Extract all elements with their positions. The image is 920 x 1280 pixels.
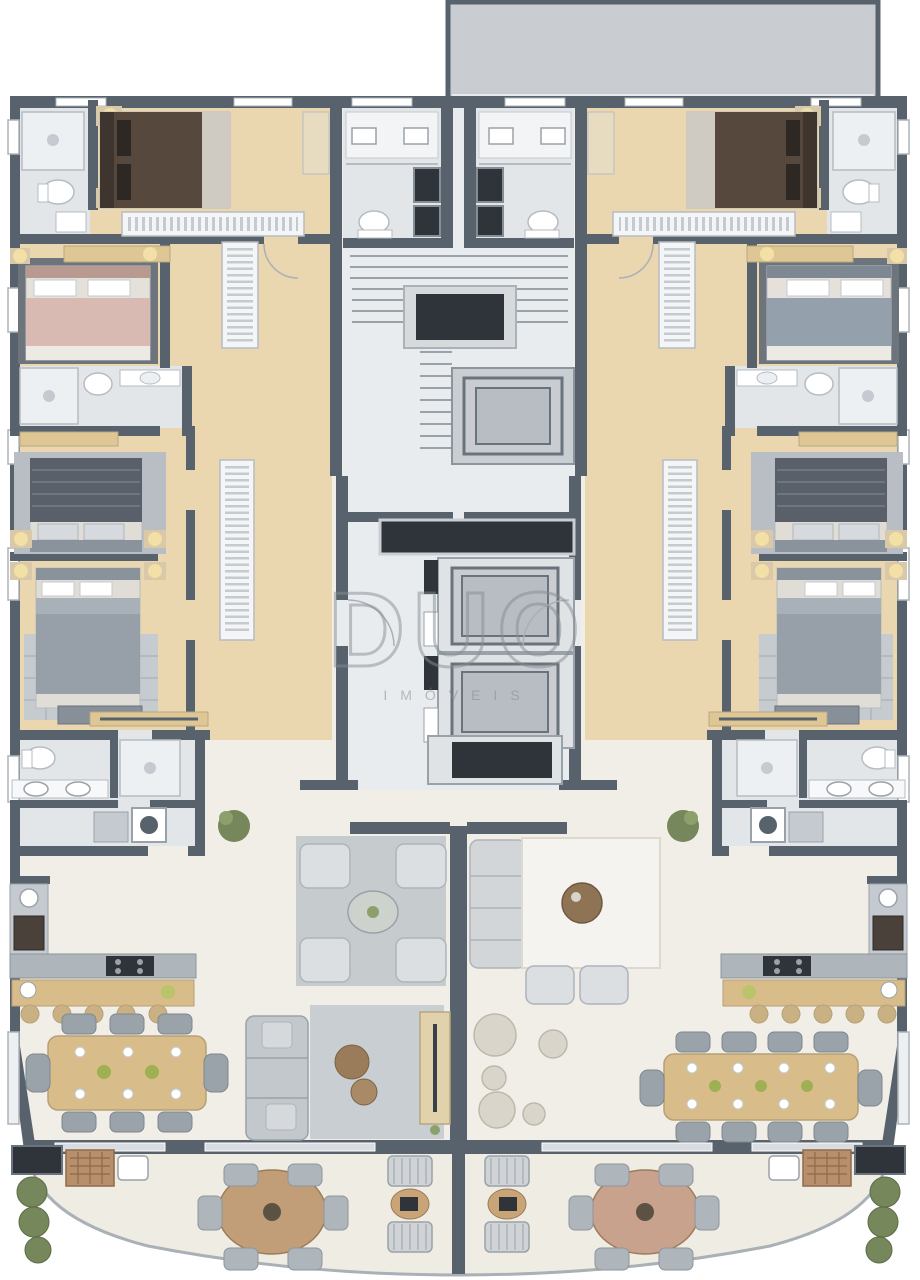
pillow [88, 280, 130, 296]
pouf [539, 1030, 567, 1058]
duvet-fold [36, 598, 140, 614]
shower-head-mirrored [761, 762, 773, 774]
interior-wall-mirrored [799, 800, 907, 808]
armchair [396, 938, 446, 982]
chair [204, 1054, 228, 1092]
duvet-fold-mirrored [687, 112, 715, 208]
interior-wall-mirrored [464, 108, 476, 248]
sink-basin-mirrored [489, 128, 513, 144]
pillow-mirrored [787, 280, 829, 296]
chair [814, 1122, 848, 1142]
planter-mirrored [870, 1177, 900, 1207]
interior-wall-mirrored [707, 730, 907, 740]
bowl [20, 982, 36, 998]
window-mirrored [898, 288, 909, 332]
sink-basin [404, 128, 428, 144]
coffee-table [562, 883, 602, 923]
plant [430, 1125, 440, 1135]
window-mirrored [898, 1032, 909, 1124]
chair-mirrored [659, 1248, 693, 1270]
duvet [26, 298, 150, 346]
armchair [396, 844, 446, 888]
interior-wall-mirrored [867, 876, 907, 884]
plate [123, 1089, 133, 1099]
bowl-mirrored [881, 982, 897, 998]
duvet-fold [26, 346, 150, 360]
chair-mirrored [695, 1196, 719, 1230]
interior-wall-mirrored [725, 366, 735, 436]
core-wall-mirrored [575, 104, 587, 476]
pouf [482, 1066, 506, 1090]
washer-mirrored [477, 168, 503, 202]
sink-basin-mirrored [757, 372, 777, 384]
balcony-divider-wall [452, 1148, 465, 1274]
chair [158, 1112, 192, 1132]
sink-basin-mirrored [541, 128, 565, 144]
chair [26, 1054, 50, 1092]
core-wall [330, 104, 342, 476]
chair [158, 1014, 192, 1034]
toilet-mirrored [805, 373, 833, 395]
dryer-mirrored [477, 206, 503, 236]
shower-head [47, 134, 59, 146]
lamp-mirrored [755, 564, 769, 578]
headboard-mirrored [775, 540, 887, 552]
floor-plan: DUOIMÓVEIS [0, 0, 920, 1280]
duvet-mirrored [767, 298, 891, 346]
pillow [84, 524, 124, 540]
interior-wall-mirrored [466, 238, 574, 248]
chair-mirrored [595, 1248, 629, 1270]
window-mirrored [811, 98, 861, 106]
chair [814, 1032, 848, 1052]
toilet-tank [358, 230, 392, 238]
plate [779, 1099, 789, 1109]
window [56, 98, 106, 106]
floor-plan-page: DUOIMÓVEIS [0, 0, 920, 1280]
door-opening [186, 600, 195, 640]
washer [414, 168, 440, 202]
kitchen-island [10, 954, 196, 978]
armchair [300, 844, 350, 888]
pillow-mirrored [793, 524, 833, 540]
chair [110, 1112, 144, 1132]
lamp [143, 247, 157, 261]
chair-mirrored [569, 1196, 593, 1230]
interior-wall [160, 244, 170, 368]
pillow-mirrored [839, 524, 879, 540]
chair [722, 1122, 756, 1142]
pillow-mirrored [841, 280, 883, 296]
burner-mirrored [774, 959, 780, 965]
bowl-mirrored [742, 985, 756, 999]
shower-head-mirrored [862, 390, 874, 402]
door-opening-mirrored [722, 470, 731, 510]
toilet-tank-mirrored [885, 750, 895, 768]
lamp [13, 249, 27, 263]
plant [219, 811, 233, 825]
interior-wall [182, 366, 192, 436]
interior-wall [336, 726, 348, 786]
pillow [80, 582, 112, 596]
chair-mirrored [659, 1164, 693, 1186]
duvet [30, 458, 142, 522]
side-table [335, 1045, 369, 1079]
grill-cabinet [12, 1146, 62, 1174]
bowl [755, 1080, 767, 1092]
interior-wall-mirrored [721, 800, 767, 808]
burner [115, 968, 121, 974]
sink-basin [140, 372, 160, 384]
washer-door-mirrored [759, 816, 777, 834]
interior-wall [195, 730, 205, 856]
interior-wall [10, 800, 118, 808]
planter [25, 1237, 51, 1263]
plate [779, 1063, 789, 1073]
sink-basin-mirrored [869, 782, 893, 796]
planter-mirrored [868, 1207, 898, 1237]
sink-basin [352, 128, 376, 144]
door-opening [118, 730, 152, 740]
chair [62, 1112, 96, 1132]
planter [17, 1177, 47, 1207]
pillow [34, 280, 76, 296]
lamp-mirrored [755, 532, 769, 546]
cabinet-mirrored [588, 112, 614, 174]
duvet-mirrored [775, 458, 887, 522]
plate [733, 1063, 743, 1073]
plate [123, 1047, 133, 1057]
window [8, 1032, 19, 1124]
duvet-fold-mirrored [767, 346, 891, 360]
watermark-subtitle: IMÓVEIS [383, 687, 532, 703]
plate [687, 1063, 697, 1073]
chair [676, 1122, 710, 1142]
bbq-sink-mirrored [769, 1156, 799, 1180]
pillow [38, 524, 78, 540]
lamp-mirrored [760, 247, 774, 261]
armchair [580, 966, 628, 1004]
window-mirrored [625, 98, 683, 106]
stove-mirrored [873, 916, 903, 950]
bbq-sink [118, 1156, 148, 1180]
interior-wall-mirrored [712, 730, 722, 856]
toilet-tank [22, 750, 32, 768]
plant [367, 906, 379, 918]
cooktop [106, 956, 154, 976]
tray [400, 1197, 418, 1211]
pillow [117, 120, 131, 156]
shower-head [144, 762, 156, 774]
burner [137, 959, 143, 965]
chair [62, 1014, 96, 1034]
centerpiece-mirrored [636, 1203, 654, 1221]
interior-wall-mirrored [559, 780, 617, 790]
pillow [42, 582, 74, 596]
unit-divider-wall [450, 826, 467, 1148]
shaft-slab [380, 520, 574, 554]
side-table [351, 1079, 377, 1105]
chair [324, 1196, 348, 1230]
interior-wall [10, 876, 50, 884]
pouf [523, 1103, 545, 1125]
planter-mirrored [866, 1237, 892, 1263]
stool-mirrored [878, 1005, 896, 1023]
lamp-mirrored [890, 249, 904, 263]
counter-mirrored [789, 812, 823, 842]
desk [20, 432, 118, 446]
grill-cabinet-mirrored [855, 1146, 905, 1174]
stove [14, 916, 44, 950]
planter [19, 1207, 49, 1237]
stool-mirrored [846, 1005, 864, 1023]
sink-basin [66, 782, 90, 796]
terrace-slab [448, 2, 878, 106]
centerpiece [263, 1203, 281, 1221]
elevator-cab [476, 388, 550, 444]
plate [733, 1099, 743, 1109]
interior-wall [343, 238, 451, 248]
window [352, 98, 412, 106]
interior-wall-mirrored [799, 740, 807, 798]
stool-mirrored [782, 1005, 800, 1023]
stool-mirrored [750, 1005, 768, 1023]
toilet-tank [38, 184, 48, 202]
interior-wall [300, 780, 358, 790]
shower-head [43, 390, 55, 402]
burner-mirrored [774, 968, 780, 974]
burner [115, 959, 121, 965]
plate [171, 1047, 181, 1057]
door-opening-mirrored [722, 600, 731, 640]
bowl [161, 985, 175, 999]
chair-mirrored [595, 1164, 629, 1186]
pouf [474, 1014, 516, 1056]
window [8, 288, 19, 332]
duvet-fold-mirrored [777, 598, 881, 614]
washer-door [140, 816, 158, 834]
chair [768, 1122, 802, 1142]
dryer [414, 206, 440, 236]
chair [676, 1032, 710, 1052]
plate [825, 1063, 835, 1073]
pillow-mirrored [786, 164, 800, 200]
pillow [266, 1104, 296, 1130]
vanity [56, 212, 86, 232]
lamp [14, 532, 28, 546]
glass-door [205, 1143, 375, 1151]
chair [224, 1248, 258, 1270]
lamp [148, 532, 162, 546]
toilet-tank-mirrored [525, 230, 559, 238]
plate [75, 1089, 85, 1099]
lamp [14, 564, 28, 578]
kitchen-island-mirrored [721, 954, 907, 978]
kitchen-sink [20, 889, 38, 907]
door-opening [186, 470, 195, 510]
counter [94, 812, 128, 842]
plate [687, 1099, 697, 1109]
glass-door-mirrored [542, 1143, 712, 1151]
bowl [801, 1080, 813, 1092]
stair-landing [416, 294, 504, 340]
burner [137, 968, 143, 974]
toilet [84, 373, 112, 395]
lamp-mirrored [889, 532, 903, 546]
toilet-tank-mirrored [869, 184, 879, 202]
headboard-mirrored [803, 112, 817, 208]
shaft-slab [452, 742, 552, 778]
plate [75, 1047, 85, 1057]
headboard-mirrored [767, 266, 891, 278]
pillow-mirrored [843, 582, 875, 596]
headboard [26, 266, 150, 278]
watermark-logo: DUO [328, 571, 588, 689]
headboard [100, 112, 114, 208]
chair [110, 1014, 144, 1034]
interior-wall [150, 800, 196, 808]
sectional-sofa [470, 840, 526, 968]
armchair [526, 966, 574, 1004]
plate [825, 1099, 835, 1109]
headboard [30, 540, 142, 552]
pouf [479, 1092, 515, 1128]
desk-mirrored [799, 432, 897, 446]
lamp-mirrored [889, 564, 903, 578]
tray-mirrored [499, 1197, 517, 1211]
window-mirrored [505, 98, 565, 106]
chair [288, 1164, 322, 1186]
plant-mirrored [684, 811, 698, 825]
duvet-fold [202, 112, 230, 208]
window [234, 98, 292, 106]
sink-basin [24, 782, 48, 796]
door-opening [148, 846, 188, 856]
cabinet [303, 112, 329, 174]
interior-wall [110, 740, 118, 798]
headboard [36, 568, 140, 580]
stool-mirrored [814, 1005, 832, 1023]
plate [171, 1089, 181, 1099]
window-mirrored [898, 120, 909, 154]
tray [571, 892, 581, 902]
interior-wall [350, 822, 450, 834]
lamp [148, 564, 162, 578]
pillow [262, 1022, 292, 1048]
sink-basin-mirrored [827, 782, 851, 796]
chair [224, 1164, 258, 1186]
burner-mirrored [796, 959, 802, 965]
interior-wall-mirrored [467, 822, 567, 834]
bowl [709, 1080, 721, 1092]
window [8, 120, 19, 154]
interior-wall [10, 730, 210, 740]
chair [768, 1032, 802, 1052]
vanity-mirrored [831, 212, 861, 232]
kitchen-sink-mirrored [879, 889, 897, 907]
cooktop-mirrored [763, 956, 811, 976]
pillow-mirrored [786, 120, 800, 156]
armchair [300, 938, 350, 982]
bowl [145, 1065, 159, 1079]
chair [288, 1248, 322, 1270]
pillow-mirrored [805, 582, 837, 596]
door-opening-mirrored [765, 730, 799, 740]
stool [21, 1005, 39, 1023]
chair [640, 1070, 664, 1106]
interior-wall-mirrored [747, 244, 757, 368]
shower-head-mirrored [858, 134, 870, 146]
burner-mirrored [796, 968, 802, 974]
chair [722, 1032, 756, 1052]
chair [858, 1070, 882, 1106]
headboard-mirrored [777, 568, 881, 580]
chair [198, 1196, 222, 1230]
pillow [117, 164, 131, 200]
bowl [97, 1065, 111, 1079]
door-opening-mirrored [729, 846, 769, 856]
interior-wall [441, 108, 453, 248]
